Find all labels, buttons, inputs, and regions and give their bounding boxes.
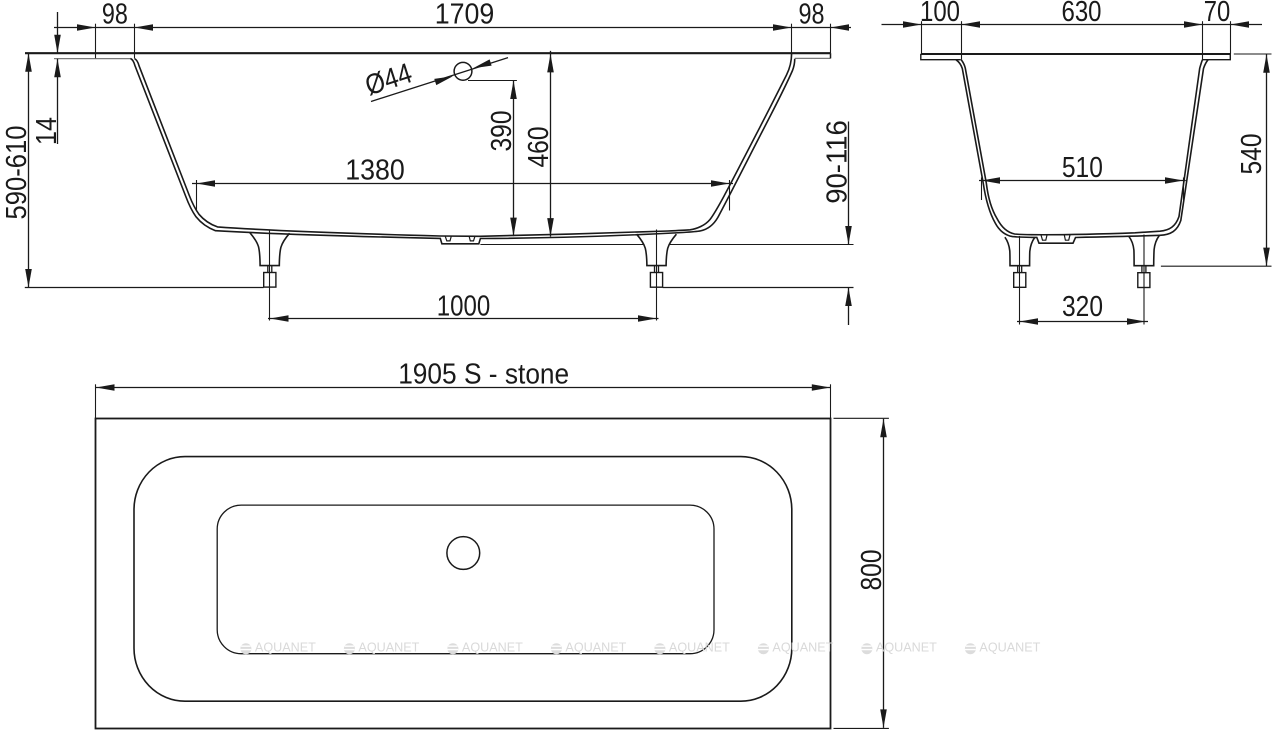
svg-text:460: 460 [523,127,555,168]
svg-text:1000: 1000 [437,290,491,322]
svg-text:510: 510 [1062,152,1103,184]
svg-text:1380: 1380 [345,154,405,186]
svg-text:70: 70 [1204,0,1231,28]
svg-text:AQUANET: AQUANET [255,641,316,655]
svg-text:98: 98 [799,0,825,30]
svg-text:630: 630 [1062,0,1102,28]
svg-text:Ø44: Ø44 [361,57,416,102]
svg-text:100: 100 [920,0,960,28]
svg-text:800: 800 [856,550,888,591]
svg-text:1905 S - stone: 1905 S - stone [398,358,569,390]
svg-text:540: 540 [1236,134,1268,175]
svg-text:590-610: 590-610 [1,126,33,220]
svg-text:1709: 1709 [435,0,495,30]
svg-text:320: 320 [1062,291,1103,323]
svg-text:98: 98 [102,0,128,30]
svg-text:90-116: 90-116 [822,120,854,204]
svg-text:14: 14 [31,117,63,145]
svg-text:390: 390 [486,111,518,152]
